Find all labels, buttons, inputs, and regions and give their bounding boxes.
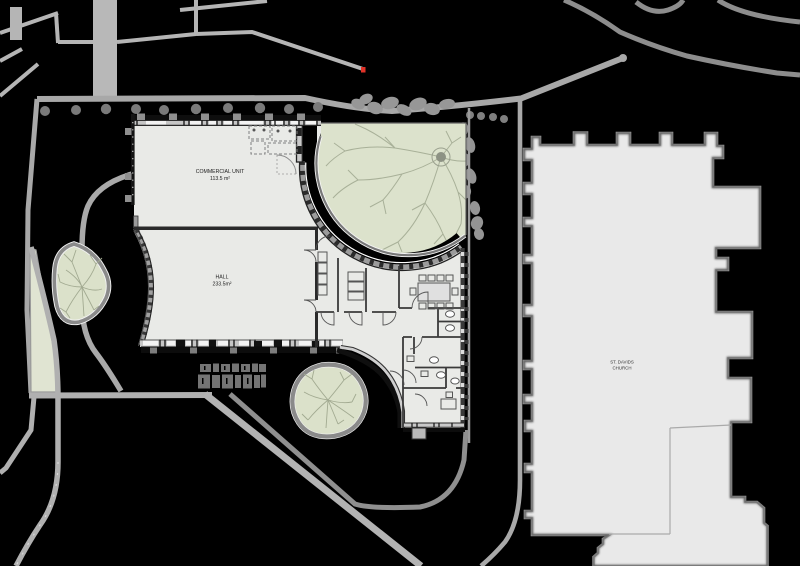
svg-text:CHURCH: CHURCH: [612, 366, 631, 371]
svg-text:ST. DAVIDS: ST. DAVIDS: [610, 360, 634, 365]
svg-text:233.5m²: 233.5m²: [212, 282, 231, 288]
svg-text:HALL: HALL: [216, 275, 229, 281]
svg-text:113.5 m²: 113.5 m²: [210, 176, 230, 182]
svg-text:COMMERCIAL UNIT: COMMERCIAL UNIT: [196, 169, 245, 175]
